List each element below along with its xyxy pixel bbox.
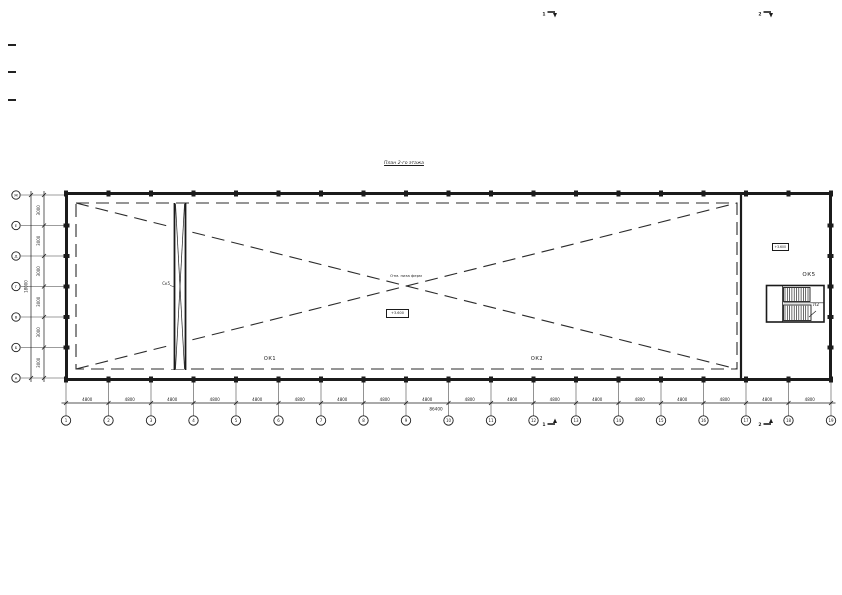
- axis-number: 11: [488, 418, 494, 423]
- column-tick-left: [64, 285, 70, 289]
- column-tick-bottom: [744, 377, 748, 383]
- axis-number: 10: [446, 418, 452, 423]
- opening-label-ok1: ОК1: [255, 357, 285, 363]
- dim-total-left: 18000: [24, 280, 29, 293]
- axis-number: 18: [786, 418, 792, 423]
- column-tick-bottom: [64, 377, 68, 383]
- center-note: Отм. низа ферм: [376, 274, 436, 278]
- stair-label: Л2: [808, 303, 824, 308]
- column-tick-top: [319, 191, 323, 197]
- room-elevation-value: +3.600: [775, 245, 786, 249]
- dim-value-bottom: 4800: [465, 397, 476, 402]
- column-tick-bottom: [617, 377, 621, 383]
- dim-value-bottom: 4800: [592, 397, 603, 402]
- axis-number: 16: [701, 418, 707, 423]
- margin-tick: [8, 44, 16, 46]
- column-tick-right: [828, 254, 834, 258]
- column-tick-top: [192, 191, 196, 197]
- column-tick-top: [107, 191, 111, 197]
- dim-value-left: 3000: [36, 357, 41, 368]
- column-tick-bottom: [149, 377, 153, 383]
- column-tick-top: [532, 191, 536, 197]
- opening-label-ok5: ОК5: [795, 272, 823, 278]
- axis-number: 1: [65, 418, 68, 423]
- column-tick-right: [828, 224, 834, 228]
- column-tick-top: [277, 191, 281, 197]
- column-tick-top: [787, 191, 791, 197]
- dim-value-left: 3000: [36, 266, 41, 277]
- column-tick-top: [829, 191, 833, 197]
- dim-value-bottom: 4800: [635, 397, 646, 402]
- section-mark-arrow: [553, 419, 557, 424]
- column-tick-top: [362, 191, 366, 197]
- column-tick-top: [574, 191, 578, 197]
- axis-number: 7: [320, 418, 323, 423]
- section-mark-arrow: [769, 13, 773, 18]
- dim-value-bottom: 4800: [805, 397, 816, 402]
- dim-value-bottom: 4800: [337, 397, 348, 402]
- dim-value-bottom: 4800: [82, 397, 93, 402]
- dim-value-bottom: 4800: [422, 397, 433, 402]
- column-tick-right: [828, 285, 834, 289]
- column-tick-left: [64, 224, 70, 228]
- floor-plan-svg: 4800480048004800480048004800480048004800…: [0, 0, 842, 595]
- column-tick-top: [447, 191, 451, 197]
- axis-number: 19: [828, 418, 834, 423]
- column-tick-bottom: [404, 377, 408, 383]
- column-tick-bottom: [829, 377, 833, 383]
- column-tick-bottom: [277, 377, 281, 383]
- axis-number: 13: [573, 418, 579, 423]
- dim-value-bottom: 4800: [380, 397, 391, 402]
- axis-number: 8: [362, 418, 365, 423]
- column-tick-top: [744, 191, 748, 197]
- room-elevation-box: +3.600: [772, 243, 790, 251]
- column-tick-bottom: [702, 377, 706, 383]
- column-tick-bottom: [532, 377, 536, 383]
- axis-letter: В: [15, 315, 18, 320]
- axis-letter: Б: [15, 345, 18, 350]
- column-tick-top: [149, 191, 153, 197]
- dim-value-left: 3000: [36, 205, 41, 216]
- shaft-mask: [169, 204, 190, 369]
- axis-number: 17: [743, 418, 749, 423]
- dim-value-bottom: 4800: [550, 397, 561, 402]
- column-tick-bottom: [447, 377, 451, 383]
- dim-value-left: 3000: [36, 296, 41, 307]
- section-mark-label: 1: [542, 422, 545, 428]
- column-tick-left: [64, 346, 70, 350]
- axis-number: 4: [192, 418, 195, 423]
- section-mark-label: 2: [758, 422, 761, 428]
- axis-number: 12: [531, 418, 537, 423]
- column-tick-top: [489, 191, 493, 197]
- dim-value-bottom: 4800: [295, 397, 306, 402]
- column-tick-top: [702, 191, 706, 197]
- axis-number: 14: [616, 418, 622, 423]
- section-mark-arrow: [553, 13, 557, 18]
- column-tick-top: [659, 191, 663, 197]
- opening-label-ok2: ОК2: [522, 357, 552, 363]
- axis-letter: А: [15, 376, 18, 381]
- axis-number: 3: [150, 418, 153, 423]
- dim-value-bottom: 4800: [167, 397, 178, 402]
- dim-value-bottom: 4800: [252, 397, 263, 402]
- column-tick-top: [617, 191, 621, 197]
- column-tick-top: [64, 191, 68, 197]
- shaft-label: Ск5: [150, 282, 170, 286]
- axis-number: 9: [405, 418, 408, 423]
- section-mark-label: 2: [758, 12, 761, 18]
- dim-value-left: 3000: [36, 235, 41, 246]
- column-tick-bottom: [489, 377, 493, 383]
- column-tick-bottom: [362, 377, 366, 383]
- axis-letter: Д: [15, 254, 18, 259]
- dim-value-bottom: 4800: [125, 397, 136, 402]
- column-tick-left: [64, 254, 70, 258]
- column-tick-bottom: [574, 377, 578, 383]
- dim-value-bottom: 4800: [507, 397, 518, 402]
- margin-tick: [8, 99, 16, 101]
- column-tick-top: [234, 191, 238, 197]
- column-tick-bottom: [319, 377, 323, 383]
- column-tick-bottom: [787, 377, 791, 383]
- axis-number: 15: [658, 418, 664, 423]
- dim-value-bottom: 4800: [720, 397, 731, 402]
- center-elevation-box: +3.600: [386, 309, 409, 318]
- column-tick-bottom: [192, 377, 196, 383]
- axis-number: 5: [235, 418, 238, 423]
- axis-number: 6: [277, 418, 280, 423]
- section-mark-label: 1: [542, 12, 545, 18]
- drawing-sheet: 4800480048004800480048004800480048004800…: [0, 0, 842, 595]
- column-tick-top: [404, 191, 408, 197]
- dim-value-bottom: 4800: [210, 397, 221, 402]
- column-tick-right: [828, 346, 834, 350]
- center-elevation-value: +3.600: [391, 311, 404, 315]
- dim-value-left: 3000: [36, 327, 41, 338]
- margin-tick: [8, 71, 16, 73]
- dim-value-bottom: 4800: [762, 397, 773, 402]
- section-mark-arrow: [769, 419, 773, 424]
- column-tick-right: [828, 315, 834, 319]
- axis-number: 2: [107, 418, 110, 423]
- dim-total-bottom: 86400: [429, 407, 443, 412]
- column-tick-bottom: [107, 377, 111, 383]
- column-tick-left: [64, 315, 70, 319]
- column-tick-bottom: [234, 377, 238, 383]
- dim-value-bottom: 4800: [677, 397, 688, 402]
- drawing-title: План 2-го этажа: [354, 161, 454, 166]
- column-tick-bottom: [659, 377, 663, 383]
